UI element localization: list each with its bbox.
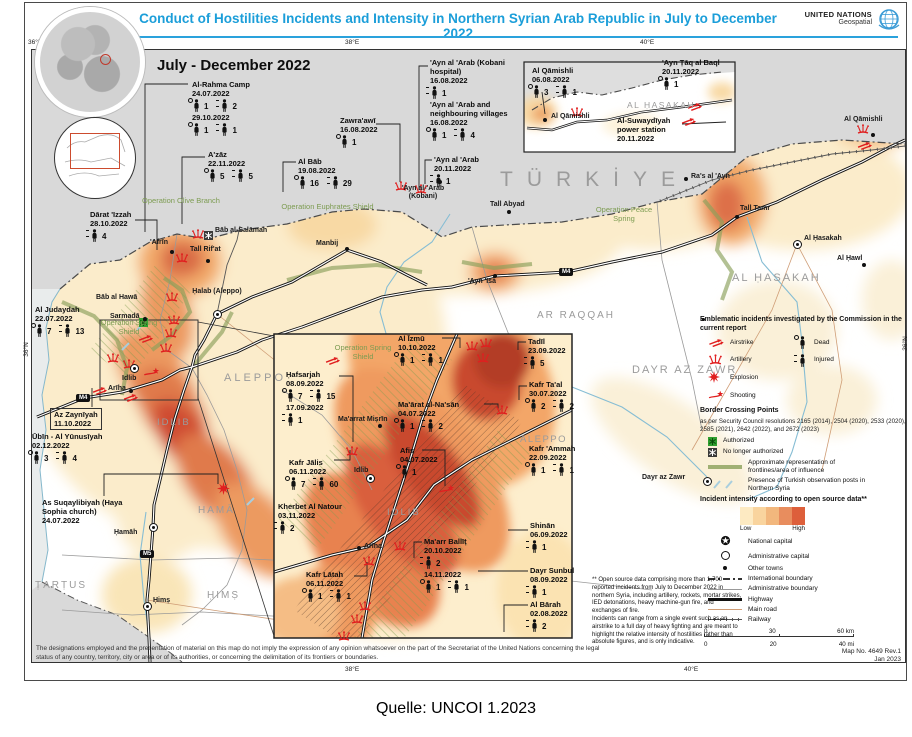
incident-date: 19.08.2022 bbox=[298, 166, 352, 175]
incident-date: 02.12.2022 bbox=[32, 441, 102, 450]
axis-bottom-40e: 40°E bbox=[684, 666, 698, 673]
dead-count: 1 bbox=[674, 80, 678, 90]
injured-icon bbox=[530, 619, 539, 632]
town-label: Idlib bbox=[122, 375, 136, 383]
incident-name: Zawra'awī bbox=[340, 116, 378, 125]
region-label: HAMĀ bbox=[198, 505, 235, 516]
incident-label: Ma'ārat al-Na'sān04.07.202212 bbox=[398, 400, 459, 433]
airstrike-icon bbox=[92, 384, 107, 395]
artillery-icon bbox=[856, 123, 870, 134]
dead-icon bbox=[529, 463, 538, 476]
casualty-row: 11 bbox=[192, 123, 250, 136]
incident-date: 14.11.2022 bbox=[424, 570, 469, 579]
injured-count: 1 bbox=[464, 583, 468, 593]
injured-icon bbox=[286, 413, 295, 426]
incident-label: Al Judaydah22.07.2022713 bbox=[35, 305, 84, 338]
town-label: Dayr az Zawr bbox=[642, 474, 685, 482]
locator-inset bbox=[54, 117, 136, 199]
dead-count: 7 bbox=[301, 480, 305, 490]
town-label: Ma'arrat Miṣrīn bbox=[338, 416, 388, 424]
incident-name: Al Bārah bbox=[530, 600, 568, 609]
crossing-closed-icon bbox=[708, 448, 717, 457]
legend-injured-label: Injured bbox=[814, 356, 874, 364]
dead-icon bbox=[208, 169, 217, 182]
town-label: Al Ḥawl bbox=[837, 255, 862, 263]
incident-date: 06.09.2022 bbox=[530, 530, 568, 539]
incident-label: Kafr Lātah06.11.202211 bbox=[306, 570, 351, 603]
artillery-icon bbox=[159, 342, 173, 353]
incident-name: Al-Suwaydīyah power station bbox=[617, 116, 681, 134]
incident-date: 16.08.2022 bbox=[430, 76, 514, 85]
casualty-row: 2 bbox=[424, 556, 469, 569]
dead-count: 2 bbox=[541, 402, 545, 412]
region-label: AL ḤASAKAH bbox=[627, 100, 695, 110]
injured-icon bbox=[314, 389, 323, 402]
incident-date: 04.07.2022 bbox=[398, 409, 459, 418]
incident-date: 20.11.2022 bbox=[434, 164, 479, 173]
incident-date: 10.10.2022 bbox=[398, 343, 443, 352]
incident-name: Ma'arr Ballīṭ bbox=[424, 537, 469, 546]
town-dot-icon bbox=[129, 389, 133, 393]
incident-label: Dayr Sunbul08.09.20221 bbox=[530, 566, 574, 599]
incident-name: Afis bbox=[400, 446, 438, 455]
axis-top-40e: 40°E bbox=[640, 39, 654, 46]
injured-icon bbox=[278, 521, 287, 534]
casualty-row: 11 bbox=[306, 589, 351, 602]
shooting-icon bbox=[708, 389, 730, 403]
casualty-row: 31 bbox=[532, 85, 577, 98]
crossing-authorized-icon bbox=[708, 437, 717, 446]
town-label: Ḥamāh bbox=[114, 529, 137, 537]
incident-label: 'Ayn al 'Arab and neighbouring villages1… bbox=[430, 100, 526, 142]
injured-icon bbox=[426, 419, 435, 432]
incident-label: As Suqaylibiyah (Haya Sophia church)24.0… bbox=[42, 498, 130, 525]
legend-admin-capital: Administrative capital bbox=[748, 553, 809, 561]
incident-label: Al Bārah02.08.20222 bbox=[530, 600, 568, 633]
title-rule bbox=[137, 36, 898, 38]
town-dot-icon bbox=[357, 546, 361, 550]
operation-label: Operation Euphrates Shield bbox=[280, 202, 375, 211]
casualty-row: 760 bbox=[289, 477, 338, 490]
map-figure: Conduct of Hostilities Incidents and Int… bbox=[24, 2, 907, 681]
casualty-row: 715 bbox=[286, 389, 335, 402]
admin-capital-icon bbox=[793, 240, 802, 249]
incident-label: 'Ayn al 'Arab20.11.20221 bbox=[434, 155, 479, 188]
town-label: Manbij bbox=[316, 240, 338, 248]
injured-count: 2 bbox=[569, 402, 573, 412]
scale-km-30: 30 bbox=[769, 628, 776, 636]
incident-name: Az Zaynīyah bbox=[54, 410, 98, 419]
incident-label: Kafr 'Ammah22.09.202211 bbox=[529, 444, 575, 477]
injured-icon bbox=[236, 169, 245, 182]
admin-capital-icon bbox=[213, 310, 222, 319]
explosion-icon bbox=[708, 371, 730, 386]
town-label: Bāb al Hawā bbox=[96, 294, 137, 302]
dead-icon bbox=[286, 389, 295, 402]
globe-syria-marker bbox=[100, 54, 111, 65]
period-heading: July - December 2022 bbox=[157, 57, 310, 75]
casualty-row: 11 bbox=[424, 580, 469, 593]
injured-icon bbox=[90, 229, 99, 242]
ramp-high-label: High bbox=[792, 525, 805, 533]
incident-label: Al-Suwaydīyah power station20.11.2022 bbox=[617, 116, 681, 143]
town-label: Arīha bbox=[108, 385, 126, 393]
incident-label: Kherbet Al Natour03.11.20222 bbox=[278, 502, 342, 535]
injured-count: 2 bbox=[232, 102, 236, 112]
injured-count: 5 bbox=[540, 359, 544, 369]
dead-count: 1 bbox=[204, 126, 208, 136]
artillery-icon bbox=[165, 291, 179, 302]
injured-icon bbox=[317, 477, 326, 490]
casualty-row: 1 bbox=[430, 86, 514, 99]
dead-icon bbox=[529, 399, 538, 412]
dead-count: 1 bbox=[352, 138, 356, 148]
shooting-icon bbox=[143, 366, 161, 377]
operation-label: Operation Spring Shield bbox=[90, 318, 168, 337]
ramp-swatch bbox=[779, 507, 792, 525]
legend-incidents-title: Emblematic incidents investigated by the… bbox=[700, 316, 906, 334]
legend-shooting-label: Shooting bbox=[730, 392, 794, 400]
frontline-sample-icon bbox=[708, 465, 742, 469]
incident-name: Kherbet Al Natour bbox=[278, 502, 342, 511]
injured-icon bbox=[63, 324, 72, 337]
dead-count: 1 bbox=[412, 468, 416, 478]
town-label: 'Afrīn bbox=[150, 239, 168, 247]
dead-count: 1 bbox=[410, 422, 414, 432]
injured-icon bbox=[220, 99, 229, 112]
town-dot-icon bbox=[206, 259, 210, 263]
incident-date: 06.11.2022 bbox=[289, 467, 338, 476]
injured-count: 5 bbox=[248, 172, 252, 182]
casualty-row: 22 bbox=[529, 399, 574, 412]
incident-date: 08.09.2022 bbox=[530, 575, 574, 584]
town-label: Bāb al-Salāmah bbox=[215, 227, 267, 235]
incident-date: 22.09.2022 bbox=[529, 453, 575, 462]
injured-count: 29 bbox=[343, 179, 352, 189]
town-label: 'Ayn 'Isá bbox=[468, 278, 496, 286]
town-dot-icon bbox=[862, 263, 866, 267]
legend-turkish-label: Presence of Turkish observation posts in… bbox=[748, 477, 878, 493]
injured-icon bbox=[60, 451, 69, 464]
region-label: IDLIB bbox=[157, 417, 191, 428]
injured-icon bbox=[220, 123, 229, 136]
region-label: TÜRKİYE bbox=[500, 168, 689, 192]
injured-count: 1 bbox=[569, 466, 573, 476]
casualty-row: 55 bbox=[208, 169, 253, 182]
incident-name: As Suqaylibiyah (Haya Sophia church) bbox=[42, 498, 130, 516]
injured-count: 1 bbox=[438, 356, 442, 366]
injured-count: 4 bbox=[470, 131, 474, 141]
casualty-row: 2 bbox=[530, 619, 568, 632]
casualty-row: 1 bbox=[434, 174, 479, 187]
axis-top-38e: 38°E bbox=[345, 39, 359, 46]
incident-label: 'Ayn Ṭāq al Baql20.11.20221 bbox=[662, 58, 720, 91]
un-brand: UNITED NATIONS Geospatial bbox=[805, 10, 872, 26]
incident-label: Zawra'awī16.08.20221 bbox=[340, 116, 378, 149]
injured-count: 4 bbox=[72, 454, 76, 464]
incident-label: Tadīl23.09.20225 bbox=[528, 337, 566, 370]
scale-km-60: 60 km bbox=[837, 628, 854, 636]
town-label: Tall Rif'at bbox=[190, 246, 221, 254]
injured-icon bbox=[452, 580, 461, 593]
injured-icon bbox=[528, 356, 537, 369]
legend-highway: Highway bbox=[748, 596, 773, 604]
airstrike-icon bbox=[857, 139, 872, 150]
dead-count: 1 bbox=[442, 131, 446, 141]
casualty-row: 1629 bbox=[298, 176, 352, 189]
injured-count: 2 bbox=[290, 524, 294, 534]
incident-date: 11.10.2022 bbox=[54, 419, 98, 428]
map-date-text: Jan 2023 bbox=[874, 656, 901, 663]
region-label: ALEPPO bbox=[224, 372, 286, 384]
incident-name: Al-Rahma Camp bbox=[192, 80, 250, 89]
incident-name: Kafr Ta'al bbox=[529, 380, 574, 389]
artillery-icon bbox=[345, 445, 359, 456]
artillery-icon bbox=[167, 314, 181, 325]
dead-count: 16 bbox=[310, 179, 319, 189]
incident-date: 24.07.2022 bbox=[192, 89, 250, 98]
incident-label: A'zāz22.11.202255 bbox=[208, 150, 253, 183]
legend-border-title: Border Crossing Points bbox=[700, 407, 906, 416]
source-caption: Quelle: UNCOI 1.2023 bbox=[0, 700, 912, 718]
injured-icon bbox=[557, 399, 566, 412]
dead-count: 5 bbox=[220, 172, 224, 182]
artillery-icon bbox=[175, 252, 189, 263]
legend-border-note: as per Security Council resolutions 2165… bbox=[700, 418, 906, 434]
dead-icon bbox=[532, 85, 541, 98]
map-canvas: 36°E 38°E 40°E 38°E 40°E 36°N 36°N July … bbox=[31, 49, 906, 663]
casualty-row: 713 bbox=[35, 324, 84, 337]
incident-name: A'zāz bbox=[208, 150, 253, 159]
axis-bottom-38e: 38°E bbox=[345, 666, 359, 673]
un-brand-name: UNITED NATIONS bbox=[805, 10, 872, 19]
casualty-row: 11 bbox=[398, 353, 443, 366]
artillery-icon bbox=[495, 404, 509, 415]
incident-name: Dārat 'Izzah bbox=[90, 210, 131, 219]
dead-icon bbox=[192, 123, 201, 136]
casualty-row: 1 bbox=[340, 135, 378, 148]
town-dot-icon bbox=[378, 424, 382, 428]
casualty-row: 1 bbox=[400, 465, 438, 478]
incident-label: Shinān06.09.20221 bbox=[530, 521, 568, 554]
incident-label: Az Zaynīyah11.10.2022 bbox=[50, 408, 102, 430]
admin-capital-icon bbox=[366, 474, 375, 483]
admin-capital-icon bbox=[149, 523, 158, 532]
town-dot-icon bbox=[871, 133, 875, 137]
explosion-icon bbox=[217, 482, 230, 495]
dead-count: 7 bbox=[298, 392, 302, 402]
casualty-row: 1 bbox=[662, 77, 720, 90]
town-dot-icon bbox=[345, 247, 349, 251]
incident-date: 16.08.2022 bbox=[340, 125, 378, 134]
injured-count: 15 bbox=[326, 392, 335, 402]
injured-count: 1 bbox=[442, 89, 446, 99]
incident-date: 22.07.2022 bbox=[35, 314, 84, 323]
incident-date: 20.11.2022 bbox=[662, 67, 720, 76]
legend-railway: Railway bbox=[748, 616, 771, 624]
town-label: Ḥalab (Aleppo) bbox=[192, 288, 242, 296]
town-label: Al Ḥasakah bbox=[804, 235, 842, 243]
casualty-row: 1 bbox=[530, 585, 574, 598]
artillery-icon bbox=[362, 555, 376, 566]
ramp-low-label: Low bbox=[740, 525, 751, 533]
injured-icon bbox=[331, 176, 340, 189]
artillery-icon bbox=[358, 600, 372, 611]
region-label: AL ḤASAKAH bbox=[732, 272, 821, 284]
intensity-ramp bbox=[740, 507, 906, 525]
national-capital-icon bbox=[708, 535, 742, 549]
incident-date: 03.11.2022 bbox=[278, 511, 342, 520]
incident-date: 23.09.2022 bbox=[528, 346, 566, 355]
incident-label: Dārat 'Izzah28.10.20224 bbox=[90, 210, 131, 243]
casualty-row: 1 bbox=[286, 413, 335, 426]
incident-date: 22.11.2022 bbox=[208, 159, 253, 168]
dead-icon bbox=[192, 99, 201, 112]
incident-name: 'Ayn al 'Arab (Kobani hospital) bbox=[430, 58, 514, 76]
injured-icon bbox=[530, 540, 539, 553]
crossing-closed-icon bbox=[204, 227, 213, 236]
incident-label: 'Ayn al 'Arab (Kobani hospital)16.08.202… bbox=[430, 58, 514, 100]
incident-date: 04.07.2022 bbox=[400, 455, 438, 464]
incident-name: 'Ayn Ṭāq al Baql bbox=[662, 58, 720, 67]
incident-date: 16.08.2022 bbox=[430, 118, 526, 127]
artillery-icon bbox=[337, 630, 351, 641]
operation-label: Operation Spring Shield bbox=[324, 343, 402, 362]
injured-icon bbox=[424, 556, 433, 569]
town-label: Arīha bbox=[364, 543, 382, 551]
incident-name: Dayr Sunbul bbox=[530, 566, 574, 575]
legend-authorized-label: Authorized bbox=[723, 437, 754, 445]
admin-capital-icon bbox=[143, 602, 152, 611]
town-label: Tall Abyad bbox=[490, 201, 525, 209]
injured-icon bbox=[458, 128, 467, 141]
injured-count: 2 bbox=[436, 559, 440, 569]
other-towns-icon bbox=[708, 565, 742, 573]
ramp-swatch bbox=[766, 507, 779, 525]
operation-label: Operation Peace Spring bbox=[588, 205, 660, 224]
injured-icon bbox=[426, 353, 435, 366]
town-dot-icon bbox=[507, 210, 511, 214]
incident-name: Al Judaydah bbox=[35, 305, 84, 314]
injured-icon bbox=[798, 354, 807, 367]
town-dot-icon bbox=[170, 250, 174, 254]
operation-label: Operation Olive Branch bbox=[142, 196, 220, 205]
incident-name: Al Qāmishli bbox=[532, 66, 577, 75]
injured-count: 2 bbox=[542, 622, 546, 632]
legend-artillery-label: Artillery bbox=[730, 356, 794, 364]
injured-count: 60 bbox=[329, 480, 338, 490]
dead-icon bbox=[289, 477, 298, 490]
ramp-swatch bbox=[740, 507, 753, 525]
injured-count: 1 bbox=[446, 177, 450, 187]
incident-date: 08.09.2022 bbox=[286, 379, 335, 388]
dead-count: 1 bbox=[410, 356, 414, 366]
incident-date: 06.08.2022 bbox=[532, 75, 577, 84]
town-dot-icon bbox=[543, 118, 547, 122]
injured-count: 1 bbox=[346, 592, 350, 602]
dead-icon bbox=[306, 589, 315, 602]
dead-count: 1 bbox=[318, 592, 322, 602]
injured-count: 1 bbox=[298, 416, 302, 426]
casualty-row: 11 bbox=[529, 463, 575, 476]
casualty-row: 12 bbox=[192, 99, 250, 112]
dead-icon bbox=[35, 324, 44, 337]
casualty-row: 5 bbox=[528, 356, 566, 369]
dead-count: 1 bbox=[204, 102, 208, 112]
incident-label: Afis04.07.20221 bbox=[400, 446, 438, 479]
incident-label: Ma'arr Ballīṭ20.10.2022214.11.202211 bbox=[424, 537, 469, 594]
incident-name: Kafr 'Ammah bbox=[529, 444, 575, 453]
injured-icon bbox=[430, 86, 439, 99]
legend-national-capital: National capital bbox=[748, 538, 792, 546]
highway-badge: M4 bbox=[559, 268, 573, 276]
dead-icon bbox=[340, 135, 349, 148]
artillery-icon bbox=[465, 340, 479, 351]
town-label: Tall Tamr bbox=[740, 205, 770, 213]
region-label: AR RAQQAH bbox=[537, 310, 615, 321]
dead-count: 1 bbox=[541, 466, 545, 476]
globe-inset bbox=[35, 7, 145, 117]
injured-icon bbox=[434, 174, 443, 187]
injured-count: 1 bbox=[232, 126, 236, 136]
injured-icon bbox=[334, 589, 343, 602]
dead-icon bbox=[298, 176, 307, 189]
legend-not-authorized-label: No longer authorized bbox=[723, 448, 783, 456]
incident-label: Ūbīn - Al Yūnusīyah02.12.202234 bbox=[32, 432, 102, 465]
map-number: Map No. 4649 Rev.1Jan 2023 bbox=[842, 648, 901, 665]
dead-icon bbox=[430, 128, 439, 141]
highway-badge: M5 bbox=[140, 550, 154, 558]
region-label: ḤIMṢ bbox=[207, 590, 240, 601]
dead-icon bbox=[424, 580, 433, 593]
injured-count: 1 bbox=[542, 588, 546, 598]
incident-date: 24.07.2022 bbox=[42, 516, 130, 525]
artillery-icon bbox=[476, 352, 490, 363]
injured-icon bbox=[557, 463, 566, 476]
town-label: Al Qāmishli bbox=[844, 116, 883, 124]
artillery-icon bbox=[479, 337, 493, 348]
legend-intl-boundary: International boundary bbox=[748, 575, 813, 583]
town-label: Ḥimṣ bbox=[153, 597, 170, 605]
town-label: Ra's al 'Ayn bbox=[691, 173, 730, 181]
incident-label: Kafr Jālis06.11.2022760 bbox=[289, 458, 338, 491]
admin-capital-icon bbox=[708, 551, 742, 563]
un-brand-sub: Geospatial bbox=[805, 19, 872, 26]
incident-label: Ḥafsarjah08.09.202271517.09.20221 bbox=[286, 370, 335, 427]
incident-date: 28.10.2022 bbox=[90, 219, 131, 228]
dead-icon bbox=[798, 336, 807, 349]
incident-label: Al Bāb19.08.20221629 bbox=[298, 157, 352, 190]
dead-count: 3 bbox=[544, 88, 548, 98]
legend-dead-label: Dead bbox=[814, 339, 874, 347]
incident-name: Kafr Jālis bbox=[289, 458, 338, 467]
disclaimer: The designations employed and the presen… bbox=[36, 645, 616, 662]
casualty-row: 4 bbox=[90, 229, 131, 242]
incident-name: Kafr Lātah bbox=[306, 570, 351, 579]
dead-icon bbox=[400, 465, 409, 478]
map-number-text: Map No. 4649 Rev.1 bbox=[842, 648, 901, 655]
incident-name: Ūbīn - Al Yūnusīyah bbox=[32, 432, 102, 441]
injured-count: 1 bbox=[572, 88, 576, 98]
artillery-icon bbox=[106, 352, 120, 363]
incident-name: Shinān bbox=[530, 521, 568, 530]
incident-date: 02.08.2022 bbox=[530, 609, 568, 618]
casualty-row: 34 bbox=[32, 451, 102, 464]
incident-label: Al Qāmishli06.08.202231 bbox=[532, 66, 577, 99]
locator-extent-rect bbox=[70, 133, 120, 169]
incident-date: 30.07.2022 bbox=[529, 389, 574, 398]
dead-icon bbox=[32, 451, 41, 464]
